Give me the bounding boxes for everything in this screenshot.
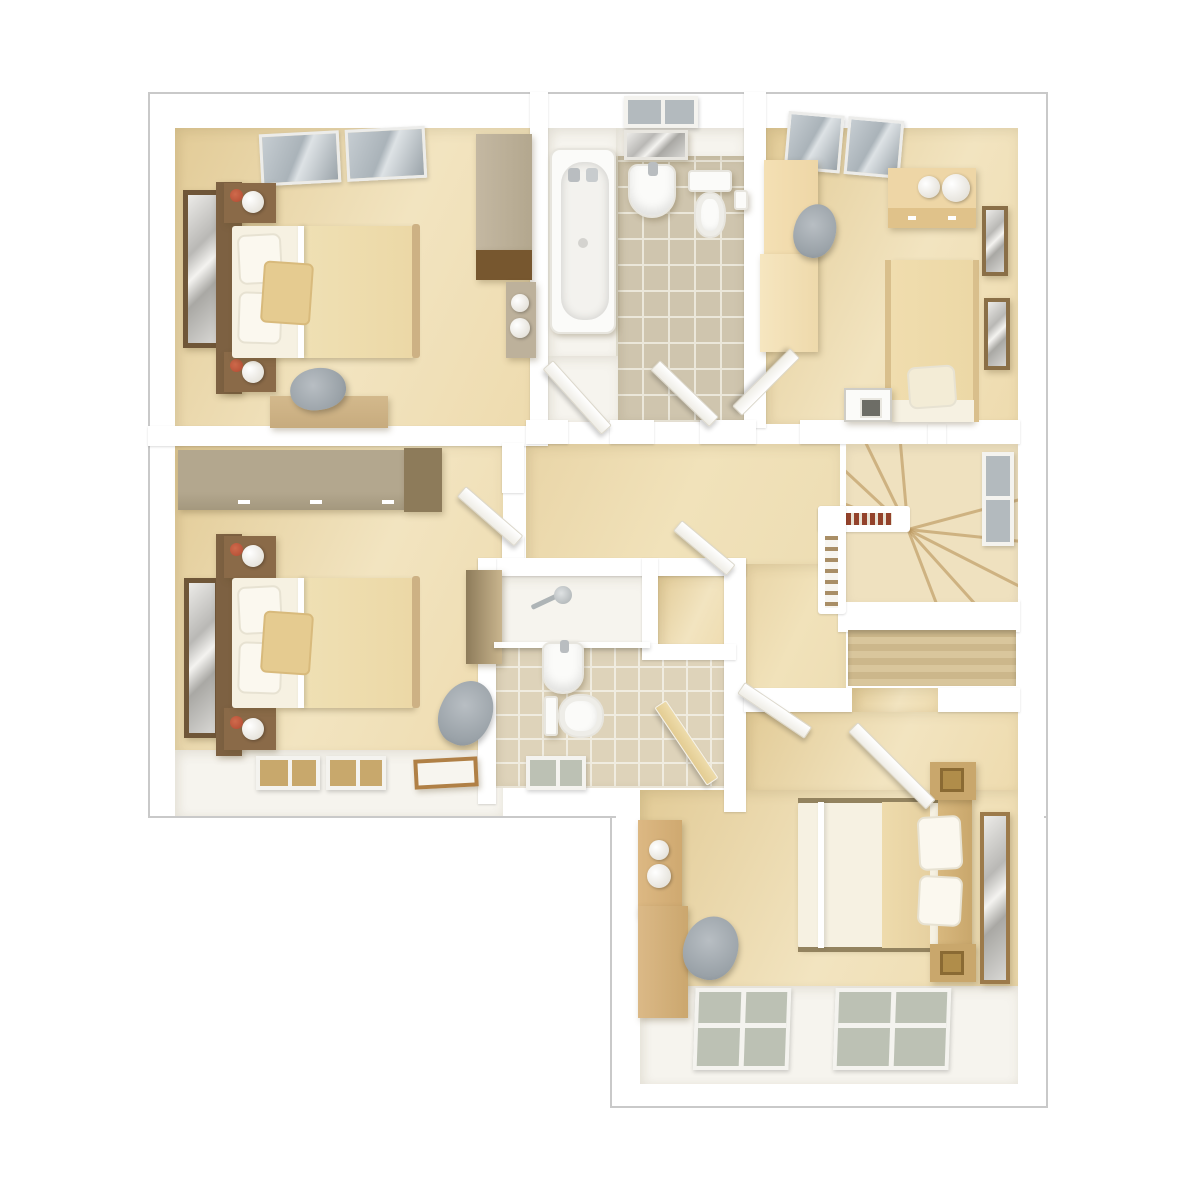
decor-bowl-icon — [647, 864, 671, 888]
ensuite-toilet-bowl — [558, 694, 604, 738]
skylight-pane-icon — [259, 130, 342, 186]
drawer-front — [888, 208, 976, 228]
ensuite-toilet-cistern — [544, 696, 558, 736]
flower-icon — [230, 543, 243, 556]
balustrade-rail-vertical — [818, 506, 846, 614]
drawer-handle-icon — [948, 216, 956, 220]
wall-bed1-bath — [530, 92, 548, 428]
bathroom-basin — [628, 164, 676, 218]
window-mullion — [661, 100, 665, 124]
master-built-in-wardrobe — [848, 630, 1016, 686]
decor-bowl-icon — [649, 840, 669, 860]
wall-landing-top-a — [526, 420, 568, 444]
lamp-icon — [242, 361, 264, 383]
bathroom-window — [624, 96, 698, 128]
wall-ensuite-top — [478, 558, 746, 576]
wall-nook-bottom — [642, 644, 736, 660]
master-nightstand-bottom — [930, 944, 976, 982]
bed-duvet — [301, 578, 414, 708]
flower-icon — [230, 359, 243, 372]
bedroom2-picture-frame-top — [982, 206, 1008, 276]
window-mullion — [288, 760, 292, 786]
ensuite-shower-zone — [494, 576, 650, 650]
lamp-icon — [242, 545, 264, 567]
master-window-left — [693, 988, 792, 1070]
wall-bed1-bed3 — [148, 426, 548, 446]
mirror-glass — [189, 583, 215, 733]
master-nightstand-top — [930, 762, 976, 800]
bedroom3-wall-mirror — [184, 578, 220, 738]
wall-below-stairs — [838, 600, 1020, 632]
shower-head-icon — [554, 586, 572, 604]
lamp-icon — [242, 191, 264, 213]
balustrade-spindles — [825, 536, 838, 608]
window-mullion — [889, 992, 897, 1066]
wall-landing-top-d — [800, 420, 1020, 444]
nightstand-lamp-icon — [940, 951, 964, 975]
nightstand-detail — [860, 398, 882, 418]
window-mullion — [986, 496, 1010, 500]
decor-bowl-icon — [918, 176, 940, 198]
bedroom3-long-wardrobe — [178, 450, 404, 510]
window-mullion — [698, 1023, 786, 1028]
mirror-glass — [984, 816, 1006, 980]
landing-floor-upper — [526, 444, 840, 566]
bedroom1-shelf-unit — [506, 282, 536, 358]
bed-cushion — [260, 610, 314, 675]
bedroom3-window-left — [256, 756, 320, 790]
mirror-glass — [188, 195, 216, 343]
tub-tap-icon — [568, 168, 580, 182]
bedroom2-single-bed — [890, 260, 974, 422]
bedroom1-open-shelf — [476, 250, 532, 280]
basin-tap-icon — [648, 162, 658, 176]
window-mullion — [356, 760, 360, 786]
bed-pillow — [907, 364, 958, 409]
bed-foot-rail — [412, 576, 420, 708]
tub-drain-icon — [578, 238, 588, 248]
bedroom3-floor-tray — [413, 756, 478, 789]
bedroom1-double-bed — [232, 226, 414, 358]
bedroom2-picture-frame-bottom — [984, 298, 1010, 370]
ensuite-basin — [542, 642, 584, 694]
skylight-pane-icon — [345, 126, 428, 182]
decor-bowl-icon — [942, 174, 970, 202]
master-tall-cabinet — [638, 820, 682, 916]
bathroom-toilet-cistern — [688, 170, 732, 192]
toilet-roll-holder — [734, 190, 748, 210]
bed-cushion — [260, 260, 314, 325]
master-wall-mirror — [980, 812, 1010, 984]
window-mullion — [838, 1023, 946, 1028]
picture-glass — [988, 302, 1006, 366]
wall-bed3-landing-a — [502, 443, 524, 493]
decor-bowl-icon — [511, 294, 529, 312]
bedroom1-skylight — [259, 126, 429, 187]
wall-landing-top-b — [610, 420, 654, 444]
ensuite-window — [526, 756, 586, 790]
bathtub — [550, 148, 616, 334]
decor-bowl-icon — [510, 318, 530, 338]
tub-tap-icon — [586, 168, 598, 182]
master-doorway-floor — [852, 688, 938, 712]
master-pillow — [917, 875, 964, 927]
bed-foot-rail — [412, 224, 420, 358]
bedroom1-nightstand-top — [224, 183, 276, 223]
nightstand-lamp-icon — [940, 768, 964, 792]
mirror-glass — [627, 133, 685, 157]
bedroom1-wardrobe — [476, 134, 532, 250]
storage-nook-floor — [658, 574, 730, 650]
bedroom2-chest-of-drawers — [888, 168, 976, 228]
bedroom2-desk — [760, 254, 818, 352]
flower-icon — [230, 716, 243, 729]
bedroom2-nightstand — [844, 388, 892, 422]
bathroom-mirror — [624, 130, 688, 160]
master-pillow — [917, 815, 964, 871]
wardrobe-handles — [178, 500, 404, 504]
basin-tap-icon — [560, 640, 569, 653]
bedroom1-nightstand-bottom — [224, 352, 276, 392]
bedroom3-window-right — [326, 756, 386, 790]
stair-window — [982, 452, 1014, 546]
bed-sheet-fold — [818, 802, 824, 948]
picture-glass — [986, 210, 1004, 272]
bedroom3-nightstand-top — [224, 536, 276, 578]
master-window-right — [833, 988, 952, 1070]
bathroom-toilet-bowl — [694, 192, 726, 238]
bed-duvet — [301, 226, 414, 358]
window-mullion — [556, 760, 560, 786]
bedroom3-desk — [466, 570, 502, 664]
balustrade-rail-wood — [846, 513, 892, 525]
master-dressing-table — [638, 906, 688, 1018]
bedroom3-double-bed — [232, 578, 414, 708]
window-mullion — [739, 992, 747, 1066]
wall-master-top-b — [938, 688, 1020, 712]
bed-frame-rail — [973, 260, 979, 422]
lamp-icon — [242, 718, 264, 740]
bedroom3-nightstand-bottom — [224, 708, 276, 750]
floor-plan-render — [0, 0, 1200, 1200]
bedroom3-wardrobe-end — [404, 448, 442, 512]
drawer-handle-icon — [908, 216, 916, 220]
flower-icon — [230, 189, 243, 202]
